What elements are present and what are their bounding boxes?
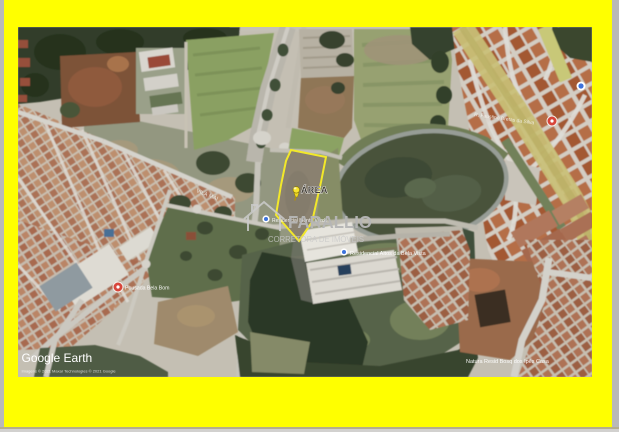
svg-text:Imagens © 2021 Maxar Technolog: Imagens © 2021 Maxar Technologies © 2021…: [22, 369, 117, 374]
svg-text:Pousada Bela Bom: Pousada Bela Bom: [125, 286, 169, 292]
svg-text:Residencial Altos da Bela Vist: Residencial Altos da Bela Vista: [350, 251, 427, 257]
svg-text:Google Earth: Google Earth: [22, 351, 93, 365]
svg-text:CORRETORA DE IMÓVEIS: CORRETORA DE IMÓVEIS: [268, 235, 364, 244]
svg-text:Natura Resid Bosq dos Ipês Cas: Natura Resid Bosq dos Ipês Casa: [466, 359, 550, 365]
svg-text:FARALLIO: FARALLIO: [288, 212, 372, 232]
svg-text:ÁREA: ÁREA: [301, 185, 328, 195]
